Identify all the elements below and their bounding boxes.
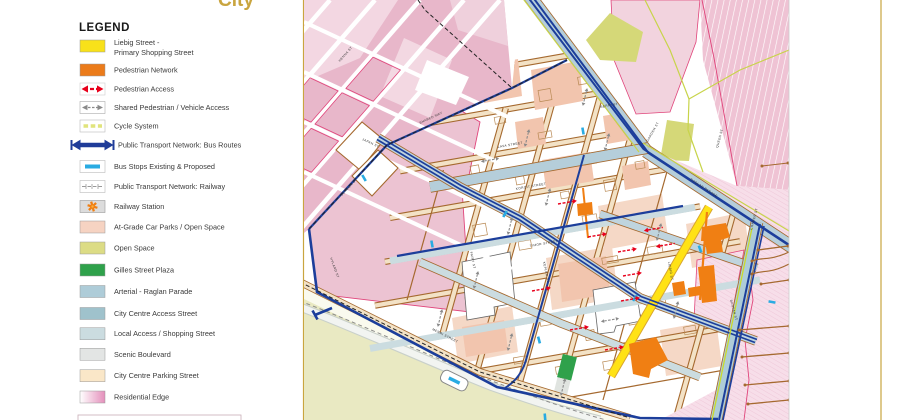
svg-text:Railway Station: Railway Station <box>114 202 164 211</box>
svg-text:Primary Shopping Street: Primary Shopping Street <box>114 48 194 57</box>
svg-text:Public Transport Network: Rail: Public Transport Network: Railway <box>114 182 225 191</box>
svg-text:City Centre Parking Street: City Centre Parking Street <box>114 371 199 380</box>
svg-text:Pedestrian Access: Pedestrian Access <box>114 85 174 94</box>
svg-text:Shared Pedestrian / Vehicle Ac: Shared Pedestrian / Vehicle Access <box>114 103 230 112</box>
svg-text:LEGEND: LEGEND <box>79 22 130 34</box>
svg-text:Public Transport Network: Bus: Public Transport Network: Bus Routes <box>118 141 242 150</box>
svg-text:At-Grade Car Parks / Open Spac: At-Grade Car Parks / Open Space <box>114 223 225 232</box>
svg-text:Residential Edge: Residential Edge <box>114 393 169 402</box>
svg-text:City Centre Access Street: City Centre Access Street <box>114 309 197 318</box>
svg-text:Liebig Street -: Liebig Street - <box>114 38 160 47</box>
svg-text:Gilles Street Plaza: Gilles Street Plaza <box>114 266 175 275</box>
svg-text:Arterial - Raglan Parade: Arterial - Raglan Parade <box>114 287 192 296</box>
svg-text:Pedestrian Network: Pedestrian Network <box>114 66 178 75</box>
svg-text:Cycle System: Cycle System <box>114 122 159 131</box>
svg-text:Local Access / Shopping Street: Local Access / Shopping Street <box>114 329 215 338</box>
svg-text:Bus Stops Existing & Proposed: Bus Stops Existing & Proposed <box>114 162 215 171</box>
svg-text:Scenic Boulevard: Scenic Boulevard <box>114 350 171 359</box>
svg-text:Open Space: Open Space <box>114 244 155 253</box>
svg-text:City: City <box>218 0 254 11</box>
